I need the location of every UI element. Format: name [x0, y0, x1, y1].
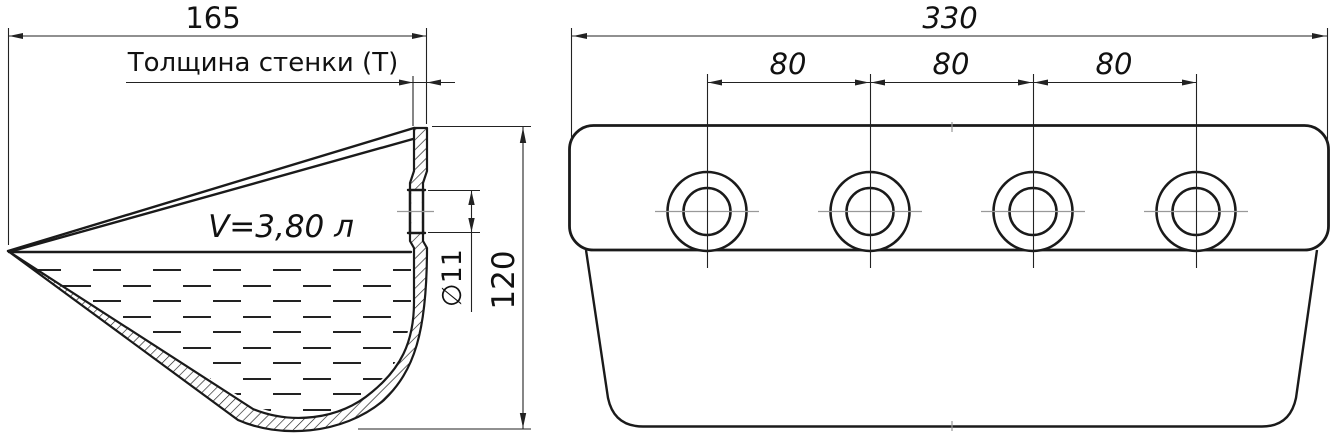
wall-hole-section: [397, 189, 434, 234]
dim-80-text-1: 80: [770, 47, 807, 81]
volume-text: V=3,80 л: [208, 209, 354, 245]
dim-80-text-3: 80: [1096, 47, 1133, 81]
dim-80-text-2: 80: [933, 47, 970, 81]
side-section-view: 165 Толщина стенки (Т) V=3,80 л ∅11: [8, 1, 531, 431]
dim-165-text: 165: [185, 1, 240, 35]
wall-thickness-text: Толщина стенки (Т): [127, 48, 398, 78]
dim-wall-thickness: Толщина стенки (Т): [126, 48, 455, 126]
engineering-drawing-sheet: 165 Толщина стенки (Т) V=3,80 л ∅11: [0, 0, 1332, 433]
front-view: 330 80 80 80: [570, 1, 1329, 431]
bucket-drawing: 165 Толщина стенки (Т) V=3,80 л ∅11: [0, 0, 1332, 433]
dim-330-text: 330: [922, 1, 977, 35]
bucket-body-outline: [586, 250, 1317, 427]
dim-120-text: 120: [486, 250, 522, 309]
dim-phi11-text: ∅11: [437, 249, 468, 307]
dim-phi11: ∅11: [428, 190, 480, 312]
